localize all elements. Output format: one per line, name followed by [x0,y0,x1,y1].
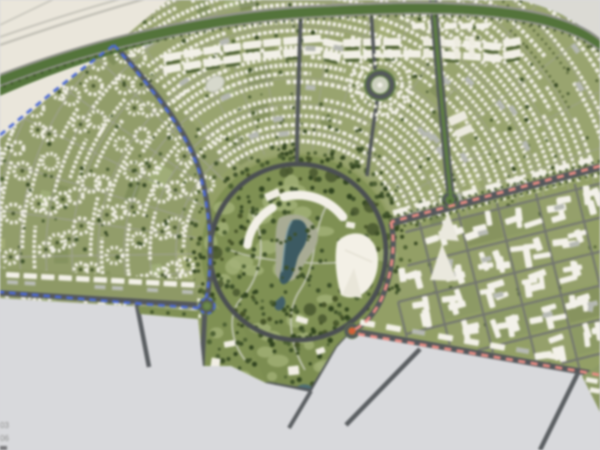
svg-text:06: 06 [0,434,9,443]
svg-text:03: 03 [0,421,9,430]
